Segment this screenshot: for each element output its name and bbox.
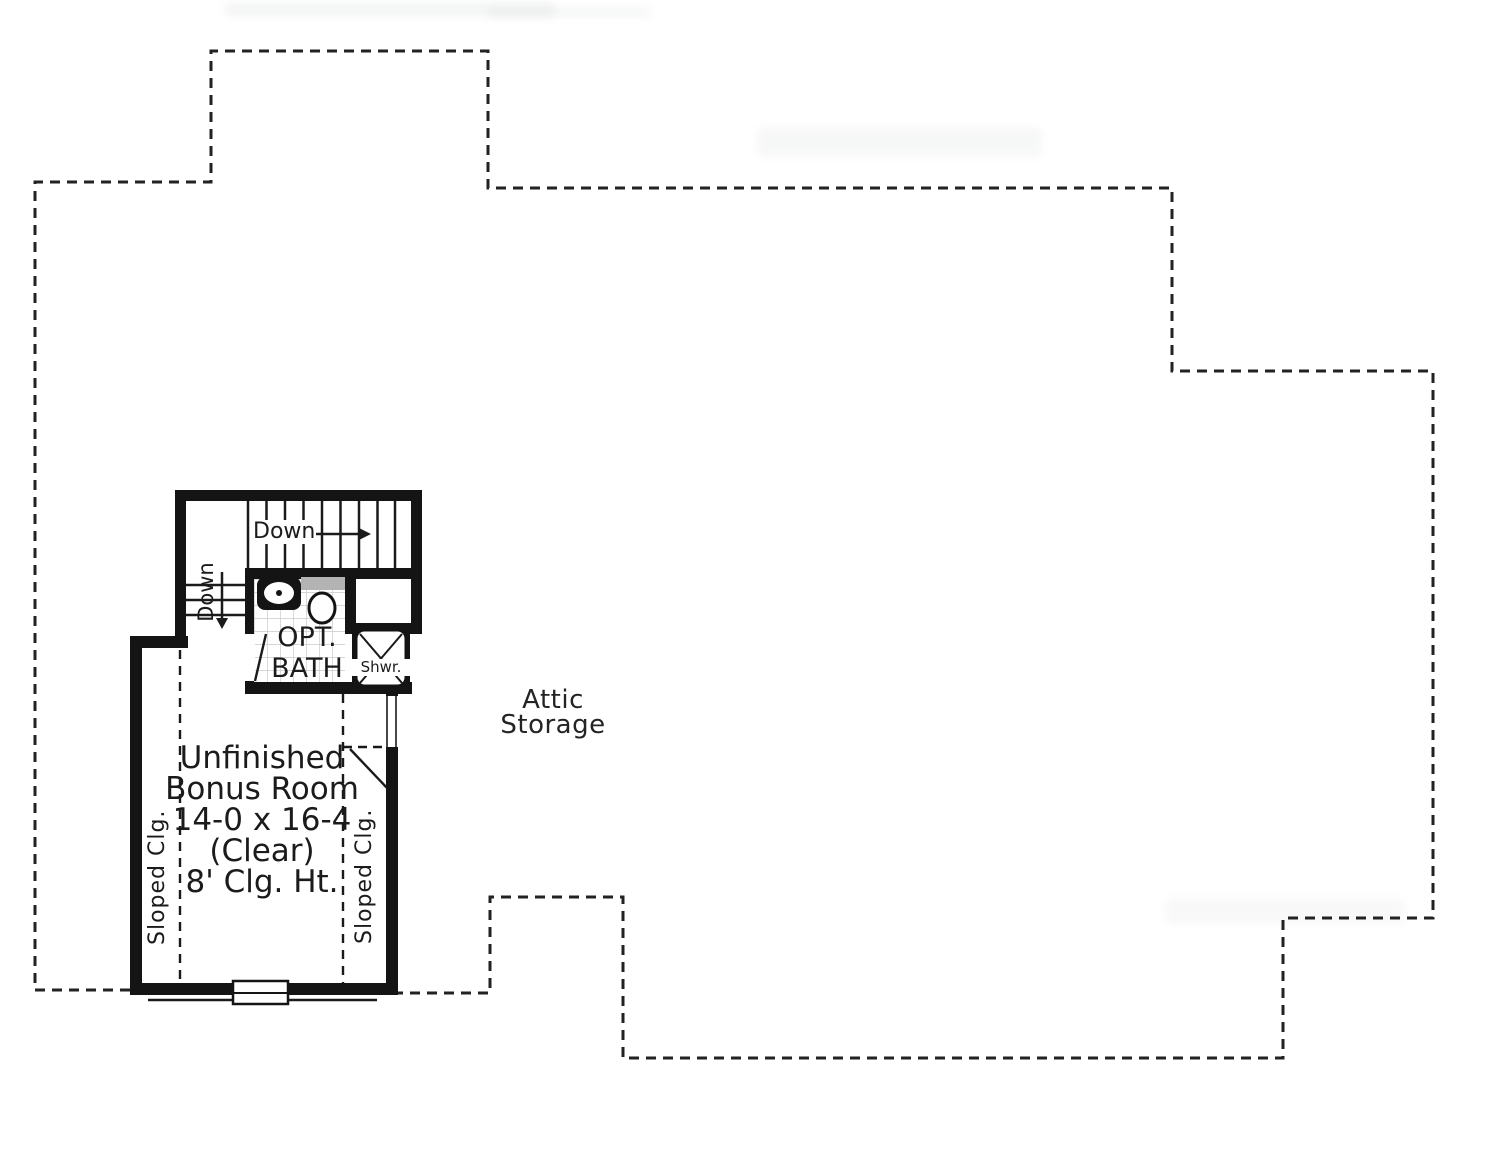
opt-bath-line1: OPT. xyxy=(248,622,366,653)
sink-drain xyxy=(276,590,282,596)
floor-plan: Attic Storage Unfinished Bonus Room 14-0… xyxy=(0,0,1500,1160)
attic-label-line2: Storage xyxy=(453,713,653,738)
plan-drawing xyxy=(0,0,1500,1160)
sloped-ceiling-label-right: Sloped Clg. xyxy=(353,824,377,944)
shower-label: Shwr. xyxy=(349,659,413,676)
attic-boundary-dashed xyxy=(35,51,1433,1058)
toilet xyxy=(309,593,335,623)
window xyxy=(233,981,288,1004)
bonus-room-title1: Unfinished xyxy=(112,743,412,774)
stairs-down-label: Down xyxy=(252,520,316,544)
stair-top-wall xyxy=(175,490,422,501)
vanity-counter xyxy=(301,577,345,590)
stair-right-wall xyxy=(411,490,422,634)
stair-left-wall xyxy=(175,490,186,648)
bonus-room-title2: Bonus Room xyxy=(112,774,412,805)
attic-storage-label: Attic Storage xyxy=(453,688,653,738)
sloped-ceiling-label-left: Sloped Clg. xyxy=(146,825,170,945)
winder-down-label: Down xyxy=(194,532,218,652)
